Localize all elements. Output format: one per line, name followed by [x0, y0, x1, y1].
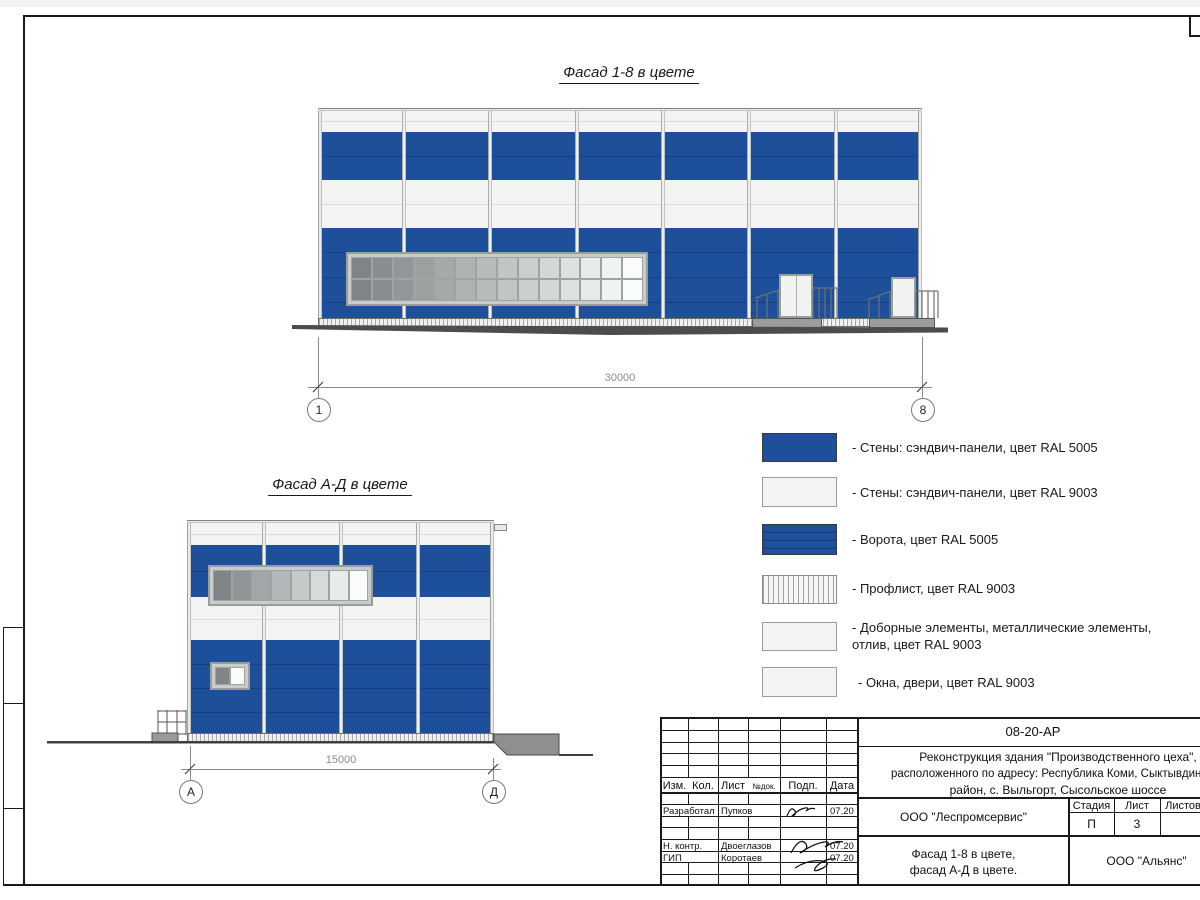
stamp-sheet-value: 3	[1114, 817, 1160, 831]
window-pane	[539, 257, 560, 279]
window-pane	[393, 279, 414, 301]
stamp-line	[858, 835, 1200, 837]
window-pane	[414, 279, 435, 301]
mullion	[262, 523, 266, 733]
facade-1-8-title-text: Фасад 1-8 в цвете	[559, 64, 699, 84]
corner-trim-right	[490, 523, 494, 733]
frame-bottom	[3, 884, 1200, 886]
window-pane	[455, 279, 476, 301]
stamp-line	[858, 746, 1200, 747]
window-pane	[560, 257, 581, 279]
panel-joint	[318, 156, 922, 157]
stamp-sheets-header: Листов	[1160, 800, 1200, 812]
window-pane	[232, 570, 251, 601]
margin-strip-div2	[3, 703, 24, 704]
window-pane	[329, 570, 348, 601]
stamp-line	[661, 753, 858, 754]
ribbon-window-glazing	[213, 570, 368, 601]
panel-joint	[318, 121, 922, 122]
mullion	[747, 111, 751, 318]
parapet-flashing	[318, 108, 922, 111]
axis-bubble-1: 1	[307, 398, 331, 422]
window-pane	[580, 257, 601, 279]
window-pane	[434, 257, 455, 279]
window-pane	[518, 257, 539, 279]
stamp-name: Двоеглазов	[721, 841, 779, 852]
axis-bubble-8: 8	[911, 398, 935, 422]
stamp-line	[661, 827, 858, 828]
ramp	[494, 734, 559, 755]
stamp-line	[780, 718, 781, 885]
stamp-date: 07.20	[830, 841, 858, 852]
stamp-line	[688, 718, 689, 777]
stamp-header-podp: Подп.	[780, 780, 826, 792]
plinth-1-8	[318, 318, 922, 327]
window-pane	[476, 257, 497, 279]
window-pane	[372, 279, 393, 301]
stamp-role: Н. контр.	[663, 841, 718, 852]
stamp-doc-code: 08-20-АР	[858, 724, 1200, 739]
stamp-header-list: Лист	[718, 780, 748, 792]
stamp-date: 07.20	[830, 853, 858, 864]
stamp-header-izm: Изм.	[661, 780, 688, 792]
window-pane	[393, 257, 414, 279]
facade-a-d-title: Фасад А-Д в цвете	[240, 476, 440, 496]
stamp-line	[661, 839, 858, 840]
door1-steps	[752, 318, 822, 328]
legend-swatch-walls-white	[762, 477, 837, 507]
dimension-line-1-8	[308, 387, 932, 388]
margin-strip-div1	[3, 627, 24, 628]
stamp-line	[718, 718, 719, 885]
ribbon-window	[346, 252, 648, 306]
double-door	[779, 274, 813, 318]
project-line-3: район, с. Выльгорт, Сысольское шоссе	[858, 782, 1200, 799]
legend-label: - Стены: сэндвич-панели, цвет RAL 9003	[852, 484, 1182, 501]
ribbon-window-glazing	[351, 257, 643, 301]
project-line-2: расположенного по адресу: Республика Ком…	[858, 766, 1200, 783]
stamp-name: Пупков	[721, 806, 779, 817]
stamp-subject: Фасад 1-8 в цвете, фасад А-Д в цвете.	[858, 846, 1069, 878]
legend-label: - Окна, двери, цвет RAL 9003	[858, 674, 1188, 691]
margin-strip-div3	[3, 808, 24, 809]
panel-joint	[318, 204, 922, 205]
facade-1-8-drawing	[318, 108, 922, 318]
legend-swatch-trim-elements	[762, 622, 837, 651]
stamp-contractor: ООО "Альянс"	[1069, 854, 1200, 868]
window-pane	[310, 570, 329, 601]
mullion	[834, 111, 838, 318]
window-pane	[476, 279, 497, 301]
stamp-line	[661, 777, 858, 778]
stamp-header-data: Дата	[826, 780, 858, 792]
stamp-line	[661, 765, 858, 766]
stamp-line	[661, 717, 1200, 719]
window-pane	[497, 279, 518, 301]
drawing-sheet-page: { "sheet": { "colors": { "ral5005": "#1E…	[0, 0, 1200, 900]
legend-label: - Профлист, цвет RAL 9003	[852, 580, 1182, 597]
window-pane	[351, 257, 372, 279]
small-window	[210, 662, 250, 690]
frame-top	[23, 15, 1200, 17]
window-pane	[414, 257, 435, 279]
legend-swatch-windows-doors	[762, 667, 837, 697]
facade-1-8-title: Фасад 1-8 в цвете	[529, 64, 729, 84]
stamp-line	[661, 874, 858, 875]
side-ladder	[158, 710, 186, 735]
window-pane	[622, 279, 643, 301]
window-pane	[497, 257, 518, 279]
frame-left	[23, 15, 25, 886]
stamp-line	[661, 730, 858, 731]
window-pane	[372, 257, 393, 279]
project-line-1: Реконструкция здания "Производственного …	[858, 749, 1200, 766]
dimension-value-a-d: 15000	[291, 754, 391, 766]
axis-bubble-a: А	[179, 780, 203, 804]
axis-bubble-d: Д	[482, 780, 506, 804]
window-pane	[271, 570, 290, 601]
extension-line	[190, 746, 191, 780]
stamp-date: 07.20	[830, 806, 858, 817]
legend-label: - Стены: сэндвич-панели, цвет RAL 5005	[852, 439, 1182, 456]
dimension-value-1-8: 30000	[570, 372, 670, 384]
corner-trim-left	[187, 523, 191, 733]
door-split-line	[796, 276, 797, 316]
window-pane	[213, 570, 232, 601]
stamp-stage-value: П	[1069, 817, 1114, 831]
window-pane	[349, 570, 368, 601]
extension-line	[318, 337, 319, 398]
stamp-line	[748, 718, 749, 777]
drip-flashing-bracket	[494, 524, 507, 531]
window-pane	[560, 279, 581, 301]
facade-a-d-title-text: Фасад А-Д в цвете	[268, 476, 411, 496]
window-pane	[518, 279, 539, 301]
dimension-line-a-d	[181, 769, 501, 770]
corner-code-box	[1189, 15, 1200, 37]
extension-line	[922, 337, 923, 398]
legend-swatch-profiled-sheet	[762, 575, 837, 604]
stamp-line	[661, 742, 858, 743]
stamp-header-ndok: №док.	[748, 782, 780, 791]
ground-line-a-d-right	[559, 754, 593, 756]
stamp-project-name: Реконструкция здания "Производственного …	[858, 749, 1200, 799]
window-pane	[622, 257, 643, 279]
stamp-line	[661, 792, 858, 794]
stamp-line	[1069, 812, 1200, 813]
legend-label: - Доборные элементы, металлические элеме…	[852, 619, 1162, 653]
corner-trim-left	[318, 111, 322, 318]
stamp-stage-header: Стадия	[1069, 800, 1114, 812]
window-pane	[230, 667, 245, 685]
stamp-line	[661, 804, 858, 805]
legend-label: - Ворота, цвет RAL 5005	[852, 531, 1182, 548]
window-pane	[434, 279, 455, 301]
subject-line-1: Фасад 1-8 в цвете,	[858, 846, 1069, 862]
window-pane	[601, 257, 622, 279]
corner-trim-right	[918, 111, 922, 318]
window-pane	[215, 667, 230, 685]
small-window-glazing	[215, 667, 245, 685]
legend-swatch-gate	[762, 524, 837, 555]
legend-swatch-walls-blue	[762, 433, 837, 462]
paper-bottom-margin	[0, 0, 1200, 7]
facade-a-d-drawing	[187, 520, 494, 733]
side-ladder-step	[152, 733, 178, 742]
window-pane	[252, 570, 271, 601]
window-pane	[351, 279, 372, 301]
window-pane	[580, 279, 601, 301]
stamp-role: ГИП	[663, 853, 718, 864]
window-pane	[455, 257, 476, 279]
stamp-header-kol: Кол.	[688, 780, 718, 792]
subject-line-2: фасад А-Д в цвете.	[858, 862, 1069, 878]
window-pane	[539, 279, 560, 301]
mullion	[416, 523, 420, 733]
door2-steps	[869, 318, 935, 328]
stamp-role: Разработал	[663, 806, 718, 817]
signature-icon	[787, 808, 815, 816]
window-pane	[601, 279, 622, 301]
stamp-name: Коротаев	[721, 853, 779, 864]
single-door	[891, 277, 916, 318]
mullion	[339, 523, 343, 733]
plinth-a-d	[187, 733, 494, 742]
stamp-line	[826, 718, 827, 885]
mullion	[661, 111, 665, 318]
stamp-sheet-header: Лист	[1114, 800, 1160, 812]
ribbon-window	[208, 565, 373, 606]
stamp-org: ООО "Леспромсервис"	[858, 810, 1069, 824]
margin-strip-left-line	[3, 627, 4, 885]
window-pane	[291, 570, 310, 601]
